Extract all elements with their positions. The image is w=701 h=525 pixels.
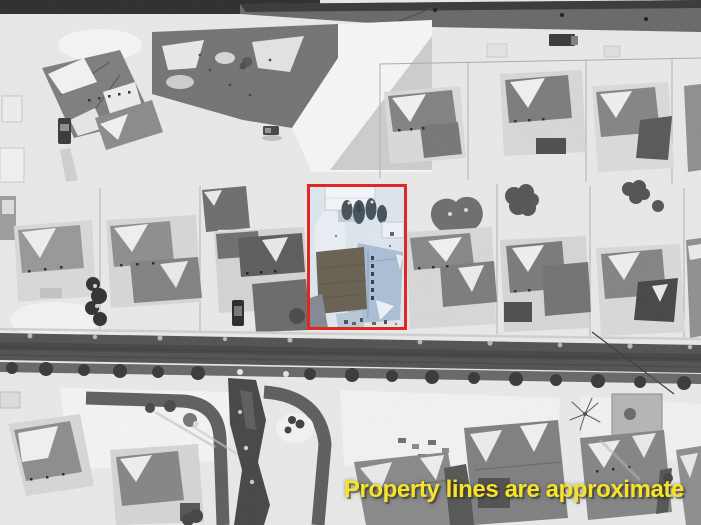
aerial-photo: Property lines are approximate bbox=[0, 0, 701, 525]
annotation-text: Property lines are approximate bbox=[344, 476, 684, 503]
film-grain-overlay bbox=[0, 0, 701, 525]
